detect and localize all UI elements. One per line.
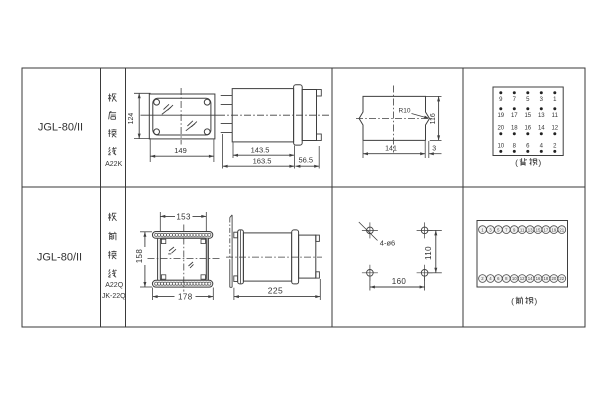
svg-text:A22Q: A22Q	[105, 282, 123, 289]
svg-text:20: 20	[497, 126, 504, 132]
svg-text:12: 12	[551, 126, 558, 132]
svg-text:): )	[538, 157, 541, 167]
svg-text:(: (	[515, 157, 518, 167]
svg-text:10: 10	[497, 144, 504, 150]
svg-text:19: 19	[551, 227, 556, 232]
svg-text:(: (	[511, 296, 514, 306]
svg-text:14: 14	[528, 276, 533, 281]
svg-text:JGL-80/II: JGL-80/II	[38, 122, 83, 134]
svg-text:4-ø6: 4-ø6	[380, 238, 395, 247]
svg-text:225: 225	[268, 286, 283, 296]
svg-text:21: 21	[559, 227, 564, 232]
svg-text:): )	[534, 296, 537, 306]
svg-text:10: 10	[512, 276, 517, 281]
svg-text:JK-22Q: JK-22Q	[102, 293, 126, 300]
svg-text:15: 15	[536, 227, 541, 232]
svg-text:141: 141	[385, 145, 397, 152]
svg-text:20: 20	[551, 276, 556, 281]
svg-text:17: 17	[511, 113, 518, 119]
svg-text:116: 116	[430, 113, 437, 124]
svg-text:15: 15	[524, 113, 531, 119]
svg-text:13: 13	[528, 227, 533, 232]
svg-text:18: 18	[544, 276, 549, 281]
svg-text:149: 149	[174, 146, 187, 155]
svg-text:11: 11	[552, 113, 559, 119]
svg-text:160: 160	[392, 277, 407, 286]
svg-text:56.5: 56.5	[298, 155, 313, 164]
svg-text:16: 16	[536, 276, 541, 281]
svg-text:178: 178	[178, 292, 193, 301]
svg-text:153: 153	[176, 212, 191, 221]
svg-text:13: 13	[538, 113, 545, 119]
svg-text:16: 16	[524, 126, 531, 132]
svg-text:A22K: A22K	[105, 161, 122, 168]
svg-text:3: 3	[432, 145, 436, 152]
svg-text:22: 22	[559, 276, 564, 281]
svg-text:158: 158	[135, 249, 144, 264]
svg-text:11: 11	[520, 227, 525, 232]
svg-text:110: 110	[424, 246, 433, 260]
svg-text:163.5: 163.5	[253, 157, 272, 166]
svg-text:124: 124	[128, 113, 135, 125]
svg-text:19: 19	[497, 113, 504, 119]
svg-text:JGL-80/II: JGL-80/II	[37, 252, 82, 264]
svg-text:14: 14	[538, 126, 545, 132]
svg-text:18: 18	[511, 126, 518, 132]
svg-text:12: 12	[520, 276, 525, 281]
svg-text:R10: R10	[399, 107, 411, 114]
svg-text:143.5: 143.5	[251, 146, 270, 155]
svg-text:17: 17	[544, 227, 549, 232]
